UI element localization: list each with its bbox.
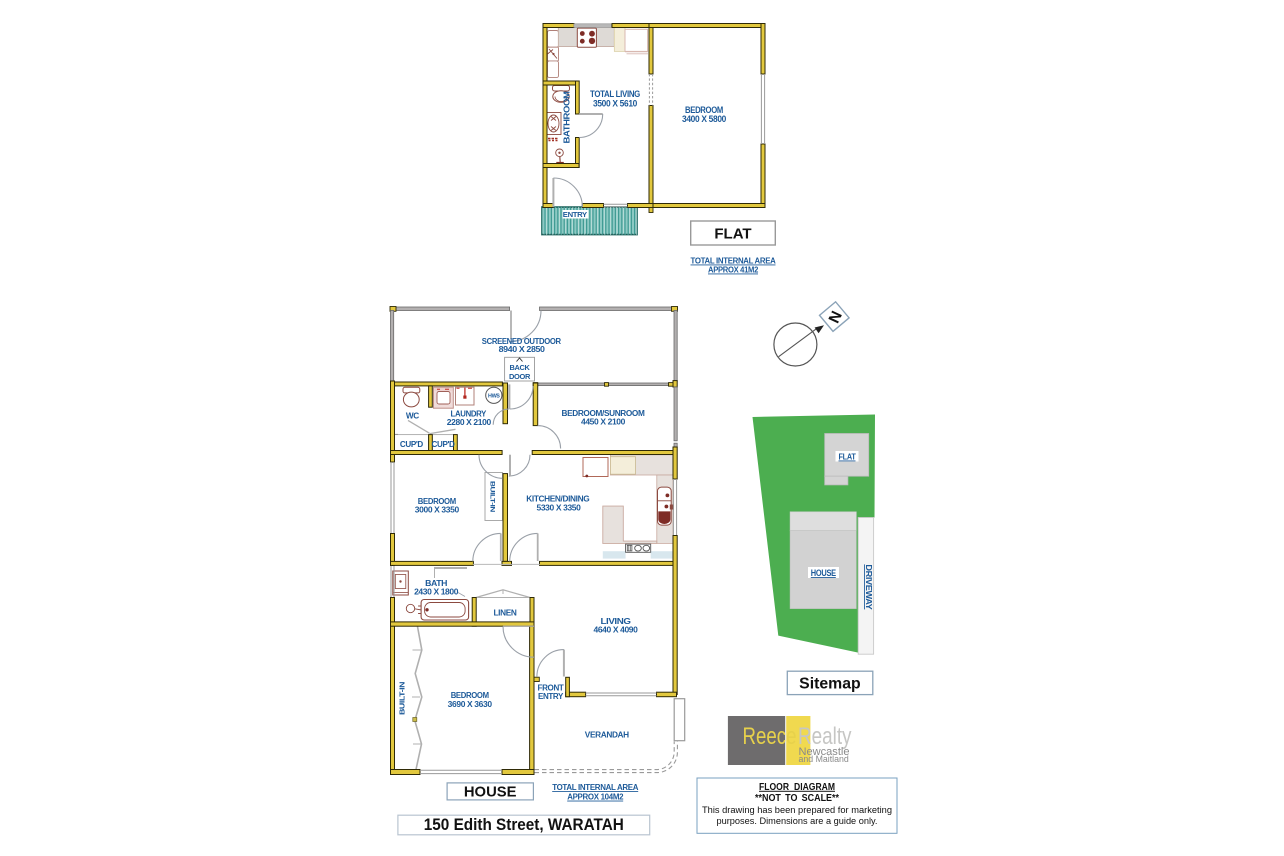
svg-text:4640 X 4090: 4640 X 4090: [594, 626, 639, 635]
svg-text:BATHROOM: BATHROOM: [562, 91, 571, 144]
svg-text:**NOT TO SCALE**: **NOT TO SCALE**: [755, 793, 839, 804]
svg-text:KITCHEN/DINING: KITCHEN/DINING: [526, 495, 589, 504]
svg-text:FLAT: FLAT: [839, 452, 857, 462]
svg-text:APPROX 41M2: APPROX 41M2: [708, 265, 759, 275]
svg-text:BACK: BACK: [510, 363, 531, 372]
svg-text:150 Edith Street, WARATAH: 150 Edith Street, WARATAH: [424, 815, 624, 834]
svg-text:LIVING: LIVING: [601, 617, 631, 626]
svg-text:APPROX 104M2: APPROX 104M2: [567, 792, 624, 802]
svg-text:CUP'D: CUP'D: [400, 440, 424, 449]
svg-text:and Maitland: and Maitland: [799, 754, 849, 764]
svg-text:DOOR: DOOR: [509, 372, 531, 381]
svg-text:HOUSE: HOUSE: [464, 785, 517, 801]
svg-text:purposes. Dimensions are a gui: purposes. Dimensions are a guide only.: [717, 816, 878, 826]
svg-text:ENTRY: ENTRY: [563, 210, 587, 219]
svg-text:3000 X 3350: 3000 X 3350: [415, 506, 460, 515]
svg-text:HOUSE: HOUSE: [811, 568, 836, 578]
svg-text:3690 X 3630: 3690 X 3630: [448, 700, 493, 709]
svg-text:VERANDAH: VERANDAH: [585, 730, 630, 739]
svg-text:BUILT-IN: BUILT-IN: [398, 682, 407, 715]
svg-text:FLAT: FLAT: [714, 226, 751, 243]
svg-text:FLOOR DIAGRAM: FLOOR DIAGRAM: [759, 782, 835, 793]
svg-text:2430 X 1800: 2430 X 1800: [414, 587, 459, 596]
svg-text:2280 X 2100: 2280 X 2100: [447, 418, 492, 427]
svg-text:3400 X 5800: 3400 X 5800: [682, 114, 726, 124]
svg-text:HWS: HWS: [488, 393, 500, 399]
svg-text:BEDROOM: BEDROOM: [451, 691, 490, 700]
svg-text:TOTAL LIVING: TOTAL LIVING: [590, 89, 640, 99]
svg-text:3500 X 5610: 3500 X 5610: [593, 99, 637, 109]
svg-text:LINEN: LINEN: [494, 608, 518, 617]
svg-text:This drawing has been prepared: This drawing has been prepared for marke…: [702, 805, 892, 815]
svg-text:BEDROOM: BEDROOM: [418, 497, 457, 506]
svg-text:BUILT-IN: BUILT-IN: [488, 481, 495, 513]
svg-text:TOTAL INTERNAL AREA: TOTAL INTERNAL AREA: [552, 782, 638, 792]
svg-text:Reece: Reece: [743, 723, 797, 750]
svg-text:CUP'D: CUP'D: [432, 440, 456, 449]
svg-text:5330 X 3350: 5330 X 3350: [537, 503, 582, 512]
svg-text:WC: WC: [406, 412, 420, 421]
svg-text:Sitemap: Sitemap: [799, 676, 860, 693]
svg-text:8940 X 2850: 8940 X 2850: [499, 345, 546, 354]
svg-text:ENTRY: ENTRY: [538, 692, 564, 701]
svg-text:DRIVEWAY: DRIVEWAY: [864, 564, 874, 610]
svg-text:4450 X 2100: 4450 X 2100: [581, 417, 626, 426]
